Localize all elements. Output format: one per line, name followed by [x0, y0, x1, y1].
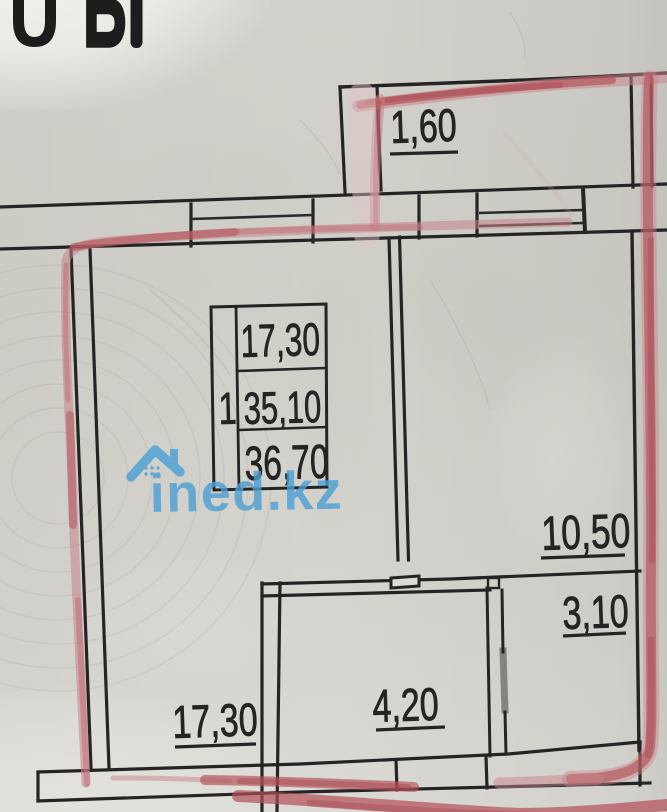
svg-text:4,20: 4,20	[372, 678, 440, 733]
svg-text:10,50: 10,50	[540, 504, 631, 560]
svg-text:ined.kz: ined.kz	[149, 461, 344, 524]
svg-text:35,10: 35,10	[243, 382, 322, 434]
svg-text:Ь: Ь	[83, 0, 126, 70]
svg-text:1,60: 1,60	[390, 99, 458, 154]
svg-text:3,10: 3,10	[562, 585, 630, 640]
svg-text:17,30: 17,30	[240, 314, 321, 367]
svg-text:1: 1	[218, 385, 237, 435]
svg-text:17,30: 17,30	[172, 693, 259, 748]
